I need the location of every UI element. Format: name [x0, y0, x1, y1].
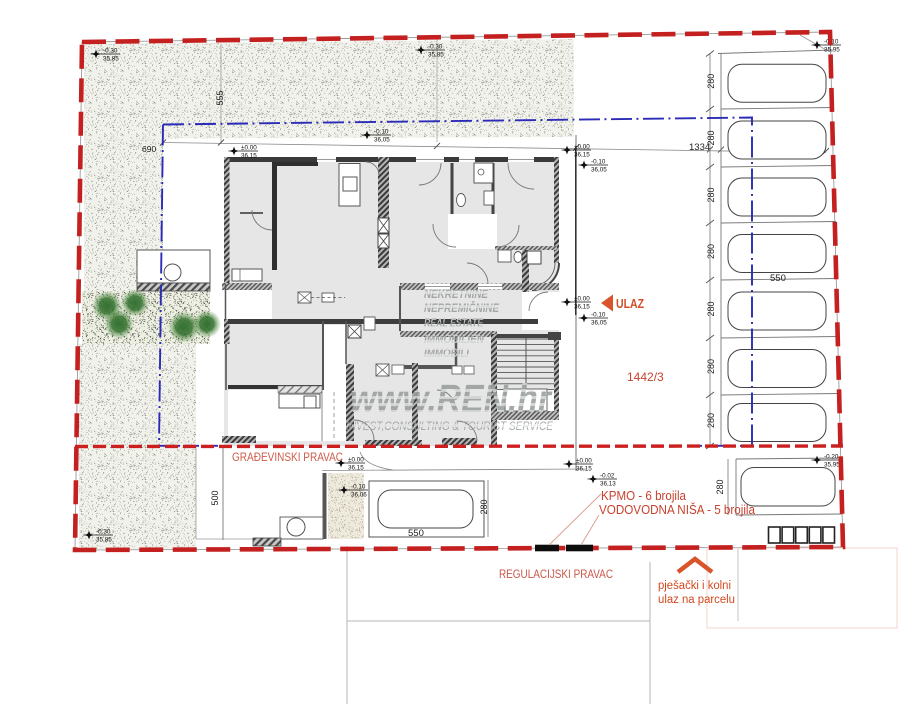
svg-text:36,05: 36,05 [591, 320, 607, 327]
svg-text:280: 280 [715, 479, 725, 494]
svg-text:690: 690 [142, 144, 156, 154]
svg-text:550: 550 [408, 528, 424, 539]
svg-text:280: 280 [479, 499, 489, 514]
svg-text:280: 280 [706, 187, 716, 202]
svg-text:-0.10: -0.10 [591, 312, 606, 319]
svg-text:36,05: 36,05 [374, 137, 390, 144]
svg-text:NEKRETNINE: NEKRETNINE [424, 287, 489, 301]
svg-text:NEPREMIČNINE: NEPREMIČNINE [424, 300, 500, 315]
svg-text:-0.10: -0.10 [351, 484, 366, 491]
svg-text:36,15: 36,15 [241, 153, 257, 160]
svg-text:36,13: 36,13 [600, 481, 616, 488]
svg-text:±0.00: ±0.00 [348, 457, 364, 464]
svg-text:REAL ESTATE: REAL ESTATE [424, 316, 484, 330]
svg-text:ulaz na parcelu: ulaz na parcelu [658, 594, 735, 606]
svg-text:REGULACIJSKI PRAVAC: REGULACIJSKI PRAVAC [499, 567, 613, 581]
svg-text:280: 280 [706, 74, 716, 89]
svg-text:35,95: 35,95 [824, 47, 840, 54]
svg-text:35,95: 35,95 [824, 462, 840, 469]
svg-text:-0.30: -0.30 [96, 529, 111, 536]
svg-text:IMMOBILIEN: IMMOBILIEN [424, 332, 484, 346]
svg-text:280: 280 [706, 359, 716, 374]
svg-text:VODOVODNA NIŠA - 5 brojila: VODOVODNA NIŠA - 5 brojila [599, 502, 755, 517]
svg-text:www.REN.hr: www.REN.hr [350, 377, 553, 421]
svg-text:-0.30: -0.30 [103, 48, 118, 55]
svg-text:±0.00: ±0.00 [574, 296, 590, 303]
svg-text:36,15: 36,15 [574, 304, 590, 311]
svg-text:35,85: 35,85 [103, 56, 119, 63]
svg-text:36,15: 36,15 [348, 465, 364, 472]
svg-text:35,85: 35,85 [428, 52, 444, 59]
svg-text:280: 280 [706, 413, 716, 428]
svg-text:±0.00: ±0.00 [576, 458, 592, 465]
svg-text:GRAĐEVINSKI PRAVAC: GRAĐEVINSKI PRAVAC [232, 452, 343, 464]
svg-text:36,15: 36,15 [574, 152, 590, 159]
svg-text:280: 280 [706, 244, 716, 259]
svg-text:pješački i kolni: pješački i kolni [658, 580, 731, 592]
svg-text:IMMOBILI: IMMOBILI [424, 346, 470, 360]
svg-text:-0.20: -0.20 [824, 454, 839, 461]
svg-text:-0.02: -0.02 [600, 473, 615, 480]
svg-text:±0.00: ±0.00 [574, 144, 590, 151]
svg-text:1442/3: 1442/3 [627, 370, 664, 384]
svg-text:-0.30: -0.30 [428, 44, 443, 51]
svg-text:KPMO - 6 brojila: KPMO - 6 brojila [601, 489, 686, 503]
svg-text:35,85: 35,85 [96, 537, 112, 544]
svg-text:36,15: 36,15 [576, 466, 592, 473]
svg-text:555: 555 [215, 90, 225, 105]
svg-text:36,06: 36,06 [351, 492, 367, 499]
svg-text:36,05: 36,05 [591, 167, 607, 174]
svg-text:-0.10: -0.10 [591, 159, 606, 166]
svg-text:1334: 1334 [689, 142, 710, 153]
svg-text:ULAZ: ULAZ [616, 297, 644, 311]
svg-text:500: 500 [210, 490, 220, 505]
svg-text:-0.10: -0.10 [374, 129, 389, 136]
svg-text:280: 280 [706, 301, 716, 316]
svg-text:±0.00: ±0.00 [241, 145, 257, 152]
svg-text:INVEST,CONSULTING & TOURIST SE: INVEST,CONSULTING & TOURIST SERVICE [346, 421, 553, 433]
svg-text:550: 550 [770, 273, 786, 284]
